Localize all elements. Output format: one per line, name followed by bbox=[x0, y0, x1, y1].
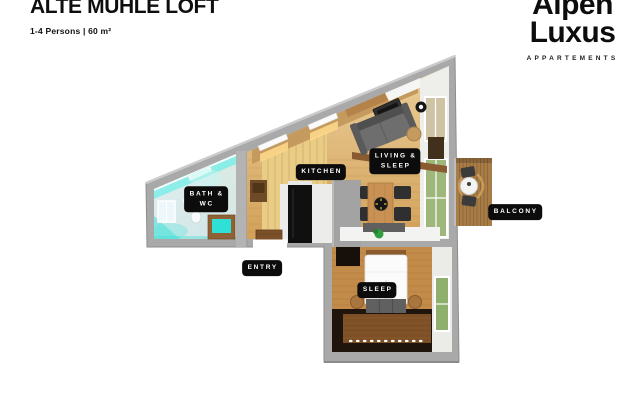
counter-plant-leaf bbox=[373, 229, 378, 234]
sleep-doorway bbox=[336, 247, 360, 266]
bath-partition-wall bbox=[236, 151, 247, 247]
hall-shelf-inner bbox=[253, 183, 265, 193]
wall-tv-panel bbox=[428, 137, 444, 159]
label-living-sleep: LIVING & SLEEP bbox=[369, 148, 420, 174]
floorplan-render bbox=[0, 0, 640, 417]
bedside-stool-right bbox=[409, 296, 422, 309]
label-entry: ENTRY bbox=[242, 260, 282, 276]
label-living-sleep-line2: SLEEP bbox=[375, 161, 417, 171]
dining-chair-4 bbox=[394, 207, 411, 221]
label-living-sleep-line1: LIVING & bbox=[375, 151, 417, 161]
fridge-top bbox=[288, 181, 312, 185]
entry-mat bbox=[256, 230, 282, 241]
balcony bbox=[454, 158, 492, 226]
label-bath-wc-line1: BATH & bbox=[190, 189, 224, 199]
page: ALTE MÜHLE LOFT 1-4 Persons | 60 m² Alpe… bbox=[0, 0, 640, 417]
room-sleep bbox=[332, 247, 452, 352]
dining-chair-3 bbox=[394, 186, 411, 199]
wall-lamp-center bbox=[419, 105, 423, 109]
toilet bbox=[191, 211, 201, 223]
entry-door-opening bbox=[253, 240, 287, 249]
balcony-table-cup bbox=[467, 182, 471, 186]
label-bath-wc-line2: WC bbox=[190, 199, 224, 209]
fridge bbox=[288, 184, 312, 243]
fridge-column-right bbox=[312, 184, 332, 243]
vanity-backlit-mirror bbox=[212, 219, 231, 233]
counter-appliance bbox=[363, 223, 405, 232]
label-kitchen: KITCHEN bbox=[296, 164, 346, 180]
bed-foot-cushions bbox=[366, 299, 406, 313]
label-balcony: BALCONY bbox=[488, 204, 542, 220]
balcony-chair-bottom bbox=[461, 195, 476, 207]
label-bath-wc: BATH & WC bbox=[184, 186, 228, 212]
label-sleep: SLEEP bbox=[357, 282, 396, 298]
side-stool bbox=[407, 127, 421, 141]
